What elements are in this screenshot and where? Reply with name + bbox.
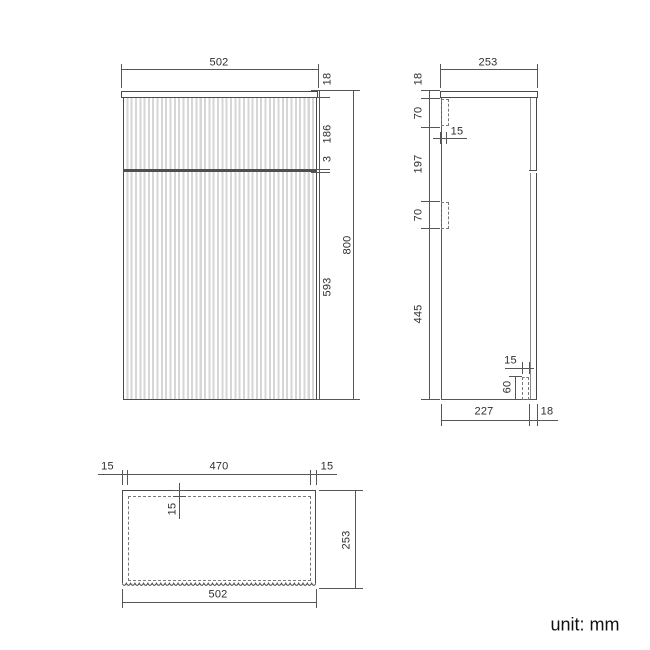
- dim-side-middle-bracket: 70: [413, 209, 424, 222]
- dim-side-bottom-bracket-thickness: 15: [504, 356, 517, 367]
- extension-tick: [509, 376, 522, 377]
- dim-front-drawer-height: 186: [322, 125, 333, 144]
- dimension-line: [429, 91, 430, 400]
- extension-line: [317, 399, 360, 400]
- extension-line: [319, 490, 363, 491]
- dim-side-depth: 253: [479, 58, 498, 69]
- side-drawer-seam: [529, 170, 537, 171]
- plan-carcass-dashed: [128, 496, 311, 581]
- dim-front-width: 502: [210, 58, 229, 69]
- dim-plan-panel-thickness: 15: [167, 503, 178, 516]
- extension-tick: [421, 127, 440, 128]
- extension-tick: [421, 90, 440, 91]
- dimension-line: [179, 483, 180, 519]
- dimension-line: [355, 490, 356, 588]
- dimension-line: [515, 377, 516, 400]
- dimension-line: [319, 91, 320, 401]
- extension-tick: [311, 97, 330, 98]
- extension-tick: [537, 404, 538, 426]
- dim-front-panel-gap: 3: [322, 155, 333, 161]
- dim-front-top-thickness: 18: [322, 73, 333, 86]
- wall-bracket-middle: [441, 202, 449, 229]
- dim-side-bottom-bracket-height: 60: [502, 381, 513, 394]
- dim-side-bracket-spacing: 197: [413, 154, 424, 173]
- bottom-bracket: [522, 377, 529, 400]
- extension-tick: [522, 362, 523, 374]
- front-fluted-body: [123, 97, 317, 400]
- dim-front-overall-height: 800: [342, 236, 353, 255]
- extension-tick: [310, 470, 311, 485]
- dim-side-top-thickness: 18: [413, 73, 424, 86]
- dim-side-base-depth: 227: [475, 406, 494, 417]
- wall-bracket-upper: [441, 99, 449, 126]
- extension-tick: [421, 98, 440, 99]
- dim-plan-left-overhang: 15: [101, 461, 114, 472]
- extension-line: [320, 90, 360, 91]
- extension-tick: [421, 201, 440, 202]
- extension-tick: [316, 589, 317, 608]
- dimension-line: [440, 69, 538, 70]
- dimension-line: [433, 138, 467, 139]
- extension-tick: [311, 169, 330, 170]
- extension-tick: [127, 470, 128, 485]
- extension-tick: [529, 404, 530, 426]
- side-back-edge: [441, 98, 442, 400]
- dimension-line: [122, 602, 316, 603]
- technical-drawing-canvas: 502 18 186 3 593 800 253: [0, 0, 650, 650]
- extension-tick: [173, 496, 186, 497]
- dim-plan-inner-width: 470: [210, 461, 229, 472]
- side-countertop: [440, 91, 538, 99]
- unit-note: unit: mm: [550, 614, 619, 635]
- dim-plan-right-overhang: 15: [321, 461, 334, 472]
- dim-side-bracket-thickness: 15: [451, 126, 464, 137]
- extension-tick: [318, 64, 319, 88]
- extension-tick: [121, 64, 122, 88]
- extension-tick: [421, 399, 440, 400]
- dim-side-upper-bracket: 70: [413, 106, 424, 119]
- front-drawer-divider: [123, 169, 317, 172]
- dimension-line: [121, 69, 318, 70]
- side-front-panel-outer: [536, 98, 538, 399]
- dim-front-lower-height: 593: [322, 277, 333, 296]
- dim-plan-overall-width: 502: [209, 590, 228, 601]
- extension-tick: [421, 228, 440, 229]
- extension-tick: [440, 132, 441, 144]
- extension-line: [319, 588, 363, 589]
- side-front-panel-inner: [530, 98, 531, 399]
- dim-plan-depth: 253: [342, 531, 353, 550]
- dimension-line: [441, 420, 558, 421]
- extension-tick: [529, 362, 530, 374]
- dim-side-lower-height: 445: [413, 305, 424, 324]
- extension-tick: [440, 64, 441, 88]
- dim-side-front-panel-thickness: 18: [541, 406, 554, 417]
- extension-tick: [509, 399, 522, 400]
- extension-tick: [446, 132, 447, 144]
- extension-tick: [173, 490, 186, 491]
- extension-tick: [122, 470, 123, 485]
- extension-tick: [316, 470, 317, 485]
- extension-tick: [537, 64, 538, 88]
- extension-tick: [122, 589, 123, 608]
- extension-tick: [441, 404, 442, 426]
- extension-tick: [311, 172, 330, 173]
- dimension-line: [98, 474, 338, 475]
- side-drawer-seam-gap: [529, 171, 538, 173]
